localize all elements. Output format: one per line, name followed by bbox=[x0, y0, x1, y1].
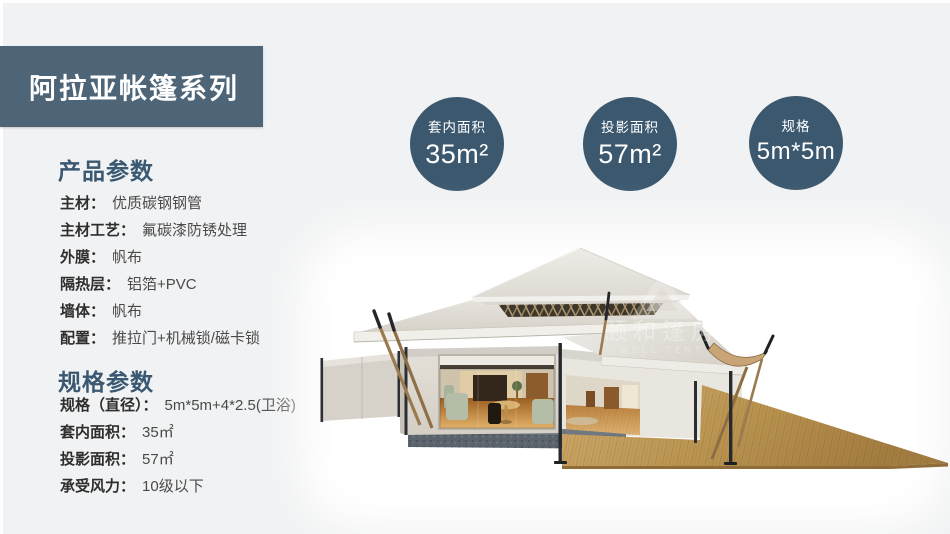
watermark-en: WELL TENT bbox=[620, 346, 704, 356]
spec-row-wind: 承受风力：10级以下 bbox=[60, 473, 296, 500]
param-label: 外膜： bbox=[60, 249, 105, 266]
spec-row-inner-area: 套内面积：35㎡ bbox=[60, 419, 296, 446]
page: 阿拉亚帐篷系列 产品参数 主材：优质碳钢钢管 主材工艺：氟碳漆防锈处理 外膜：帆… bbox=[0, 0, 950, 534]
param-label: 主材： bbox=[60, 195, 105, 212]
param-value: 帆布 bbox=[112, 303, 142, 320]
page-top-edge bbox=[0, 0, 950, 3]
param-value: 推拉门+机械锁/磁卡锁 bbox=[112, 330, 260, 347]
param-value: 35㎡ bbox=[142, 424, 174, 441]
param-label: 套内面积： bbox=[60, 424, 135, 441]
badge-label: 规格 bbox=[749, 115, 843, 135]
param-label: 隔热层： bbox=[60, 276, 120, 293]
param-row-material: 主材：优质碳钢钢管 bbox=[60, 190, 260, 217]
main-room bbox=[400, 346, 562, 435]
series-title-banner: 阿拉亚帐篷系列 bbox=[0, 46, 263, 127]
series-title: 阿拉亚帐篷系列 bbox=[0, 67, 239, 107]
badge-label: 套内面积 bbox=[410, 116, 504, 136]
badge-value: 57m² bbox=[583, 139, 677, 170]
param-label: 配置： bbox=[60, 330, 105, 347]
spec-row-size: 规格（直径）：5m*5m+4*2.5(卫浴) bbox=[60, 392, 296, 419]
param-label: 规格（直径）： bbox=[60, 397, 158, 414]
param-label: 投影面积： bbox=[60, 451, 135, 468]
param-value: 铝箔+PVC bbox=[127, 276, 197, 293]
param-row-membrane: 外膜：帆布 bbox=[60, 244, 260, 271]
param-value: 5m*5m+4*2.5(卫浴) bbox=[165, 397, 296, 414]
param-row-wall: 墙体：帆布 bbox=[60, 298, 260, 325]
param-value: 氟碳漆防锈处理 bbox=[142, 222, 247, 239]
param-value: 优质碳钢钢管 bbox=[112, 195, 202, 212]
badge-value: 35m² bbox=[410, 139, 504, 170]
param-row-insulation: 隔热层：铝箔+PVC bbox=[60, 271, 260, 298]
param-row-process: 主材工艺：氟碳漆防锈处理 bbox=[60, 217, 260, 244]
param-value: 10级以下 bbox=[142, 478, 204, 495]
param-label: 主材工艺： bbox=[60, 222, 135, 239]
badge-size: 规格 5m*5m bbox=[749, 96, 843, 190]
main-room-interior bbox=[440, 369, 554, 428]
spec-params-list: 规格（直径）：5m*5m+4*2.5(卫浴) 套内面积：35㎡ 投影面积：57㎡… bbox=[60, 392, 296, 500]
param-label: 承受风力： bbox=[60, 478, 135, 495]
param-value: 帆布 bbox=[112, 249, 142, 266]
product-params-list: 主材：优质碳钢钢管 主材工艺：氟碳漆防锈处理 外膜：帆布 隔热层：铝箔+PVC … bbox=[60, 190, 260, 352]
product-params-heading: 产品参数 bbox=[58, 152, 154, 186]
watermark-cn: 颐和篷房 bbox=[604, 319, 720, 345]
left-wing bbox=[321, 351, 401, 422]
badge-inner-area: 套内面积 35m² bbox=[410, 97, 504, 191]
param-row-config: 配置：推拉门+机械锁/磁卡锁 bbox=[60, 325, 260, 352]
badge-projection-area: 投影面积 57m² bbox=[583, 97, 677, 191]
tent-illustration: 颐和篷房 WELL TENT bbox=[310, 235, 950, 534]
badge-value: 5m*5m bbox=[749, 138, 843, 166]
param-value: 57㎡ bbox=[142, 451, 174, 468]
badge-label: 投影面积 bbox=[583, 116, 677, 136]
param-label: 墙体： bbox=[60, 303, 105, 320]
spec-row-projection-area: 投影面积：57㎡ bbox=[60, 446, 296, 473]
